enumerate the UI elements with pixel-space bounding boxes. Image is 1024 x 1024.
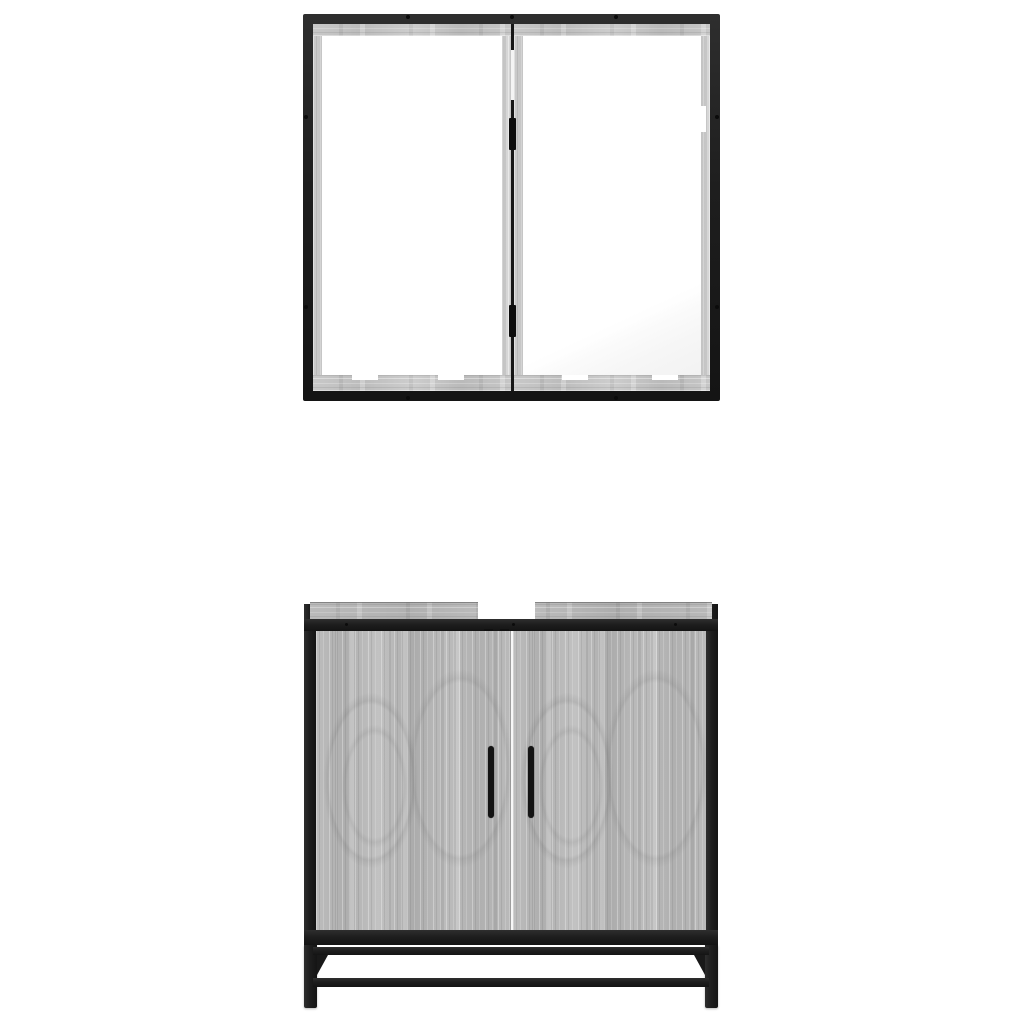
screw-dot [406,15,410,19]
washbasin-cabinet [304,600,718,1010]
door-handle-right [528,746,534,818]
mirror-door-right [514,24,710,391]
mirror-clip [701,106,706,132]
crossbar-upper [313,947,709,955]
screw-dot [715,305,719,309]
mirror-door-left [313,24,511,391]
hinge [509,118,516,150]
corner-bracket-right [694,955,705,975]
mirror-clip [562,375,588,380]
door-gap-highlight [511,50,514,100]
screw-dot [345,623,348,626]
door-frame-bottom [313,375,511,391]
door-frame-top [313,24,511,36]
door-frame-top [514,24,710,36]
screw-dot [512,623,515,626]
product-photo [0,0,1024,1024]
mirror-glass-right [523,36,701,375]
plumbing-notch [478,600,535,619]
mirror-glass-left [322,36,502,375]
screw-dot [614,15,618,19]
bottom-rail [304,930,718,945]
crossbar-lower [313,978,709,987]
screw-dot [614,396,618,400]
hinge [509,305,516,337]
corner-bracket-left [317,955,328,975]
mirror-door-gap [511,24,514,391]
screw-dot [406,396,410,400]
screw-dot [674,623,677,626]
screw-dot [304,305,308,309]
mirror-clip [352,375,378,380]
door-handle-left [488,746,494,818]
mirror-clip [652,375,678,380]
frame-post-left [304,604,316,945]
frame-post-right [706,604,718,945]
cabinet-door-right [513,631,706,930]
cabinet-door-left [316,631,511,930]
mirror-cabinet [303,14,720,401]
screw-dot [510,15,514,19]
screw-dot [715,115,719,119]
mirror-clip [438,375,464,380]
top-rail [304,619,718,631]
screw-dot [304,115,308,119]
door-frame-bottom [514,375,710,391]
